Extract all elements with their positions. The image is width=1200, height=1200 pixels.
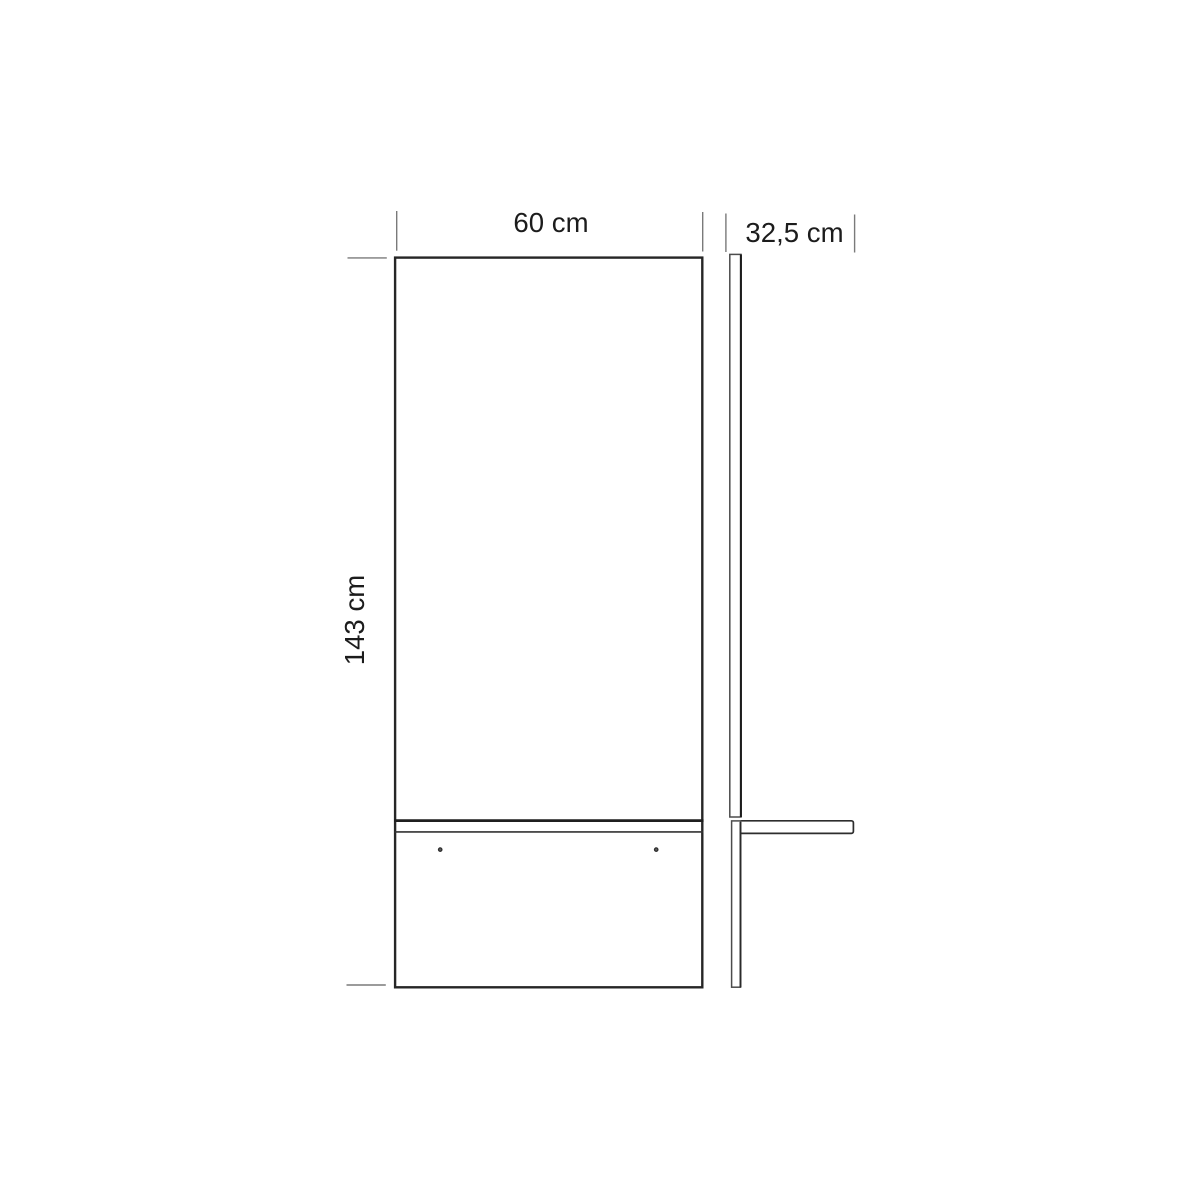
svg-text:32,5 cm: 32,5 cm (745, 217, 843, 248)
svg-text:143 cm: 143 cm (339, 575, 370, 666)
svg-text:60 cm: 60 cm (513, 207, 588, 238)
